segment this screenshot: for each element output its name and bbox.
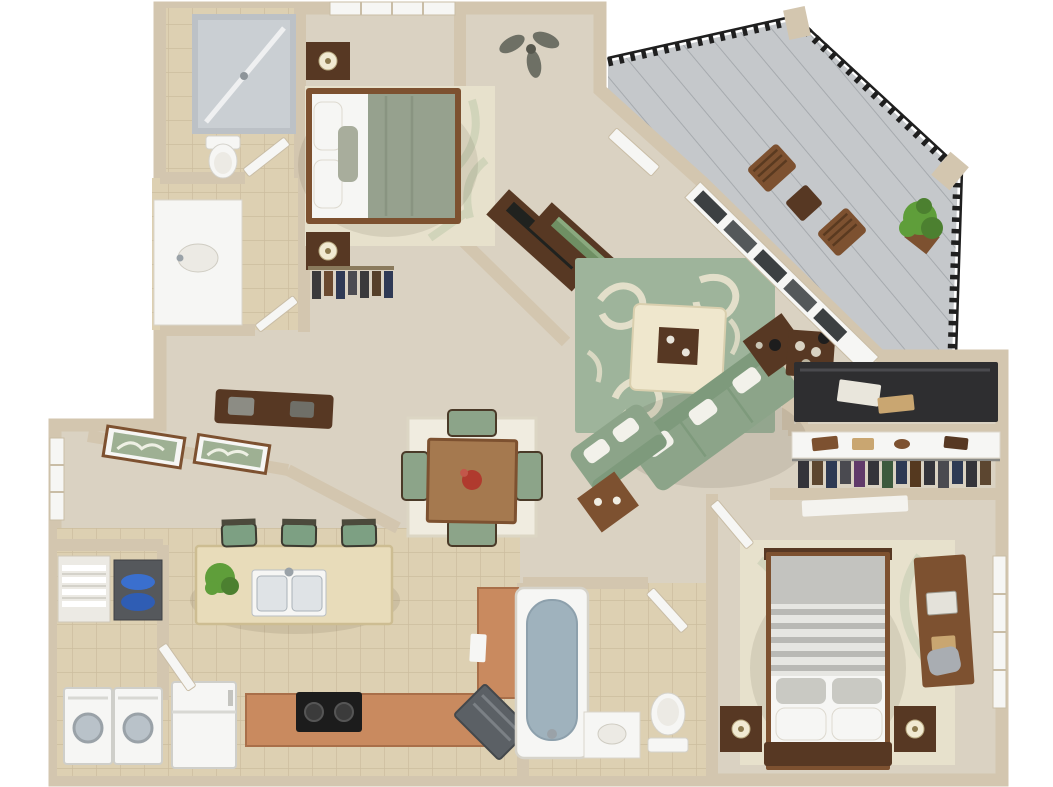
bathtub xyxy=(516,588,588,758)
hall-window xyxy=(50,438,64,520)
sham-pillow xyxy=(776,678,826,704)
floor-plan-stage xyxy=(0,0,1053,787)
master-bed xyxy=(306,88,461,224)
counter-towel xyxy=(469,634,486,663)
bar-stool xyxy=(282,519,316,547)
shelf-shoes xyxy=(943,436,968,450)
dining-chair xyxy=(448,520,496,546)
nightstand xyxy=(894,706,936,752)
pillow xyxy=(776,708,826,740)
pillow xyxy=(314,160,342,208)
linen-shelf xyxy=(58,556,110,622)
nightstand xyxy=(720,706,762,752)
room-office-nook xyxy=(794,362,998,422)
pillow xyxy=(832,708,882,740)
dining-chair xyxy=(402,452,428,500)
bath2-vanity xyxy=(584,712,640,758)
nightstand xyxy=(306,42,350,80)
bar-stool xyxy=(221,518,256,546)
bar-stool xyxy=(342,519,376,547)
shelf-bag xyxy=(852,438,874,450)
double-sink xyxy=(252,568,326,617)
dryer xyxy=(114,688,162,764)
shower-drain xyxy=(240,72,248,80)
cooktop xyxy=(296,692,362,732)
dining-chair xyxy=(448,410,496,436)
vanity-sink xyxy=(178,244,218,272)
nightstand xyxy=(306,232,350,270)
pillow xyxy=(314,102,342,150)
bench xyxy=(214,389,334,429)
refrigerator xyxy=(172,682,236,768)
tub-faucet xyxy=(547,729,557,739)
striped-duvet xyxy=(771,604,885,676)
laptop xyxy=(926,591,957,615)
washer xyxy=(64,688,112,764)
dining-table xyxy=(427,439,516,523)
ottoman-tray xyxy=(657,327,699,365)
sham-pillow xyxy=(832,678,882,704)
bed2 xyxy=(764,548,892,770)
kitchen-island xyxy=(196,546,392,624)
blue-towel-shelf xyxy=(114,560,162,620)
sink-faucet xyxy=(285,568,294,577)
dining-chair xyxy=(516,452,542,500)
shelf-shoes xyxy=(811,436,838,452)
room-dining xyxy=(402,410,542,546)
vanity-counter xyxy=(154,200,242,325)
floor-plan-render xyxy=(0,0,1053,787)
toilet2 xyxy=(648,693,688,752)
rack-hanging-clothes xyxy=(312,271,393,299)
accent-pillow xyxy=(338,126,358,182)
vanity-faucet xyxy=(177,255,184,262)
